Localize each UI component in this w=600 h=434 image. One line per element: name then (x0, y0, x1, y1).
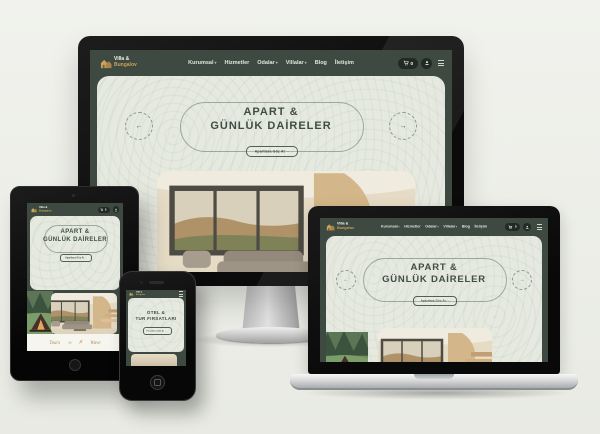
chevron-down-icon: ▾ (456, 225, 457, 228)
nav-item-kurumsal[interactable]: Kurumsal▾ (188, 60, 216, 66)
villa-logo-icon (100, 58, 112, 69)
phone-home-button (150, 375, 165, 390)
header-actions: 0 (505, 223, 542, 231)
brand-line2: Bungalov (39, 210, 52, 213)
site-header: Villa & Bungalov 0 (27, 203, 123, 216)
account-button[interactable] (421, 58, 432, 69)
brand-logo[interactable]: Villa & Bungalov (326, 221, 360, 233)
carousel-next-button[interactable]: → (389, 112, 417, 140)
nav-item-hizmetler[interactable]: Hizmetler (225, 60, 250, 66)
nav-label: İletişim (335, 60, 354, 66)
user-icon (114, 208, 118, 212)
header-actions: 0 (98, 206, 120, 213)
account-button[interactable] (113, 206, 120, 213)
hero-cta-button[interactable]: Apartlara Göz At → (413, 296, 457, 306)
tablet-camera (72, 194, 75, 197)
laptop-frame: Villa & Bungalov Kurumsal▾ Hizmetler Oda… (308, 206, 560, 374)
partner-logo: ✗ (78, 340, 82, 346)
menu-icon[interactable] (179, 291, 183, 296)
brand-name: Villa & Bungalov (114, 57, 137, 69)
cart-button[interactable]: 0 (98, 207, 110, 213)
next-arrow-icon: → (520, 277, 525, 283)
phone-speaker (149, 281, 164, 284)
nav-label: Kurumsal (381, 225, 398, 229)
prev-arrow-icon: ← (136, 123, 143, 130)
nav-label: Villalar (286, 60, 304, 66)
partner-logos: Tours ∞ ✗ Wave (27, 334, 123, 351)
chevron-down-icon: ▾ (437, 225, 438, 228)
hero-title-line2: TUR FIRSATLARI (128, 316, 184, 321)
interior-photo (378, 328, 492, 362)
hero-title-line1: APART & (30, 229, 120, 235)
cart-count: 0 (514, 226, 516, 229)
interior-photo (51, 293, 117, 334)
user-icon (424, 60, 430, 66)
hero-cta-button[interactable]: Apartlara Göz At → (246, 146, 298, 157)
nav-label: Odalar (425, 225, 437, 229)
menu-icon[interactable] (438, 60, 444, 66)
phone-frame: Villa & Bungalov OTEL & TUR FIRSATLARI F… (119, 271, 196, 401)
partner-logo: Tours (50, 340, 61, 345)
nav-item-blog[interactable]: Blog (315, 60, 327, 66)
interior-photo (131, 354, 177, 366)
nav-item-hizmetler[interactable]: Hizmetler (404, 225, 420, 229)
cart-button[interactable]: 0 (505, 223, 520, 231)
main-nav: Kurumsal▾ Hizmetler Odalar▾ Villalar▾ Bl… (381, 225, 487, 229)
carousel-prev-button[interactable]: ← (125, 112, 153, 140)
brand-name: Villa & Bungalov (136, 292, 145, 297)
cart-count: 0 (410, 61, 413, 66)
brand-line2: Bungalov (337, 227, 354, 231)
account-button[interactable] (523, 223, 531, 231)
nav-item-villalar[interactable]: Villalar▾ (443, 225, 457, 229)
nav-label: Hizmetler (225, 60, 250, 66)
nav-label: Hizmetler (404, 225, 420, 229)
villa-logo-icon (326, 223, 335, 231)
brand-logo[interactable]: Villa & Bungalov (100, 57, 137, 69)
nav-label: Odalar (257, 60, 274, 66)
brand-line2: Bungalov (114, 63, 137, 69)
user-icon (525, 225, 530, 230)
hero-title-line2: GÜNLÜK DAİRELER (30, 237, 120, 243)
phone-screen: Villa & Bungalov OTEL & TUR FIRSATLARI F… (126, 290, 186, 366)
laptop-base (290, 374, 578, 390)
brand-name: Villa & Bungalov (39, 206, 52, 212)
prev-arrow-icon: ← (344, 277, 349, 283)
cabin-photo (326, 332, 368, 362)
site-header: Villa & Bungalov Kurumsal▾ Hizmetler Oda… (320, 218, 548, 236)
villa-logo-icon (31, 207, 37, 213)
tablet-screen: Villa & Bungalov 0 APART & GÜ (27, 203, 123, 351)
device-mockup-scene: Villa & Bungalov Kurumsal▾ Hizmetler Oda… (0, 0, 600, 434)
laptop-notch (414, 374, 454, 379)
header-actions (176, 291, 183, 296)
nav-label: Kurumsal (188, 60, 213, 66)
hero-cta-button[interactable]: Apartlara Göz At → (60, 254, 92, 262)
chevron-down-icon: ▾ (214, 60, 216, 65)
chevron-down-icon: ▾ (276, 60, 278, 65)
nav-item-iletisim[interactable]: İletişim (335, 60, 354, 66)
chevron-down-icon: ▾ (398, 225, 399, 228)
cta-label: Fırsatlara Göz At → (147, 330, 167, 332)
hero-cta-button[interactable]: Fırsatlara Göz At → (143, 327, 172, 335)
carousel-prev-button[interactable]: ← (336, 270, 356, 290)
nav-item-iletisim[interactable]: İletişim (475, 225, 488, 229)
hero-title-line2: GÜNLÜK DAİRELER (326, 274, 542, 285)
hero-section: APART & GÜNLÜK DAİRELER Apartlara Göz At… (30, 216, 120, 290)
carousel-next-button[interactable]: → (512, 270, 532, 290)
site-header: Villa & Bungalov (126, 290, 186, 298)
brand-line2: Bungalov (136, 294, 145, 296)
hero-section: OTEL & TUR FIRSATLARI Fırsatlara Göz At … (128, 298, 184, 352)
menu-icon[interactable] (537, 224, 542, 230)
next-arrow-icon: → (400, 123, 407, 130)
nav-item-villalar[interactable]: Villalar▾ (286, 60, 307, 66)
cart-icon (100, 208, 104, 212)
cart-icon (508, 225, 513, 230)
hero-section: APART & GÜNLÜK DAİRELER Apartlara Göz At… (326, 236, 542, 362)
laptop-screen: Villa & Bungalov Kurumsal▾ Hizmetler Oda… (320, 218, 548, 362)
cta-label: Apartlara Göz At → (254, 150, 289, 154)
nav-label: Blog (462, 225, 470, 229)
nav-label: Villalar (443, 225, 455, 229)
cart-icon (403, 60, 409, 66)
header-actions: 0 (398, 58, 444, 69)
brand-logo[interactable]: Villa & Bungalov (31, 204, 62, 216)
hero-title-line1: APART & (326, 262, 542, 273)
nav-label: Blog (315, 60, 327, 66)
nav-item-kurumsal[interactable]: Kurumsal▾ (381, 225, 400, 229)
hero-title-line1: OTEL & (128, 310, 184, 315)
nav-item-blog[interactable]: Blog (462, 225, 470, 229)
phone-camera (140, 281, 143, 284)
villa-logo-icon (129, 292, 134, 296)
nav-item-odalar[interactable]: Odalar▾ (257, 60, 277, 66)
partner-logo: Wave (90, 340, 100, 345)
cta-label: Apartlara Göz At → (420, 300, 449, 303)
partner-logo: ∞ (68, 340, 71, 345)
brand-name: Villa & Bungalov (337, 223, 354, 232)
cta-label: Apartlara Göz At → (65, 257, 87, 259)
brand-logo[interactable]: Villa & Bungalov (129, 290, 158, 300)
nav-item-odalar[interactable]: Odalar▾ (425, 225, 438, 229)
chevron-down-icon: ▾ (305, 60, 307, 65)
tablet-home-button (69, 359, 81, 371)
cart-count: 0 (105, 208, 107, 211)
main-nav: Kurumsal▾ Hizmetler Odalar▾ Villalar▾ Bl… (188, 60, 354, 66)
site-header: Villa & Bungalov Kurumsal▾ Hizmetler Oda… (90, 50, 452, 76)
cart-button[interactable]: 0 (398, 58, 418, 69)
nav-label: İletişim (475, 225, 488, 229)
